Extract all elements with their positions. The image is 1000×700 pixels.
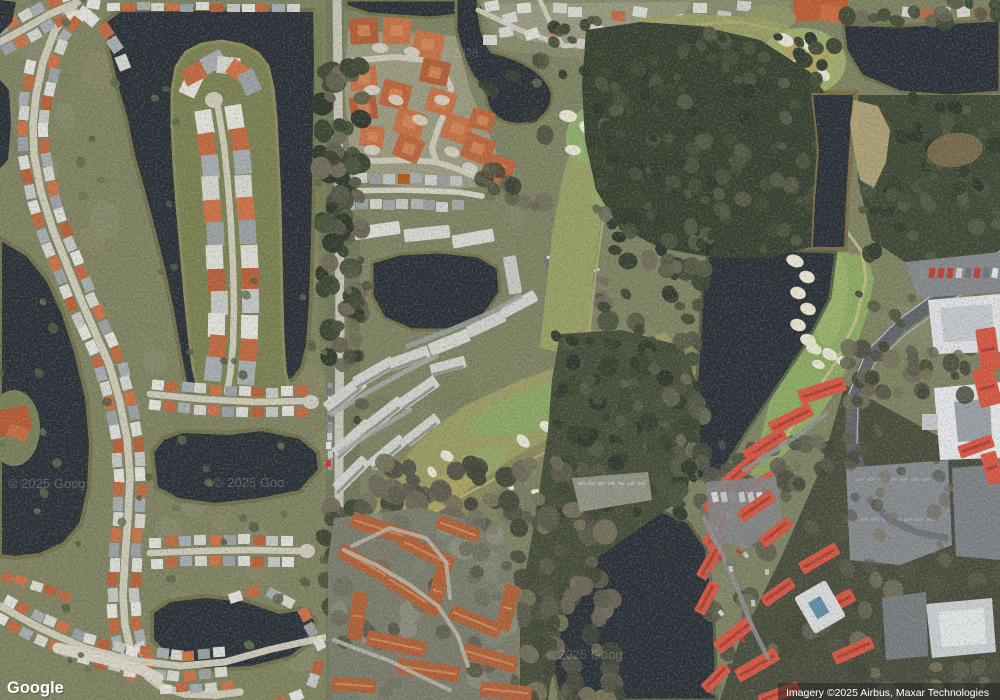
svg-text:Google: Google — [7, 679, 64, 697]
svg-text:© 2025 Goo: © 2025 Goo — [214, 475, 284, 490]
svg-text:© 2025 Goog: © 2025 Goog — [545, 647, 623, 662]
svg-text:© 2025 Goog: © 2025 Goog — [8, 476, 86, 491]
svg-text:© 2025: © 2025 — [440, 46, 479, 60]
svg-text:Imagery ©2025 Airbus, Maxar Te: Imagery ©2025 Airbus, Maxar Technologies — [786, 687, 989, 699]
